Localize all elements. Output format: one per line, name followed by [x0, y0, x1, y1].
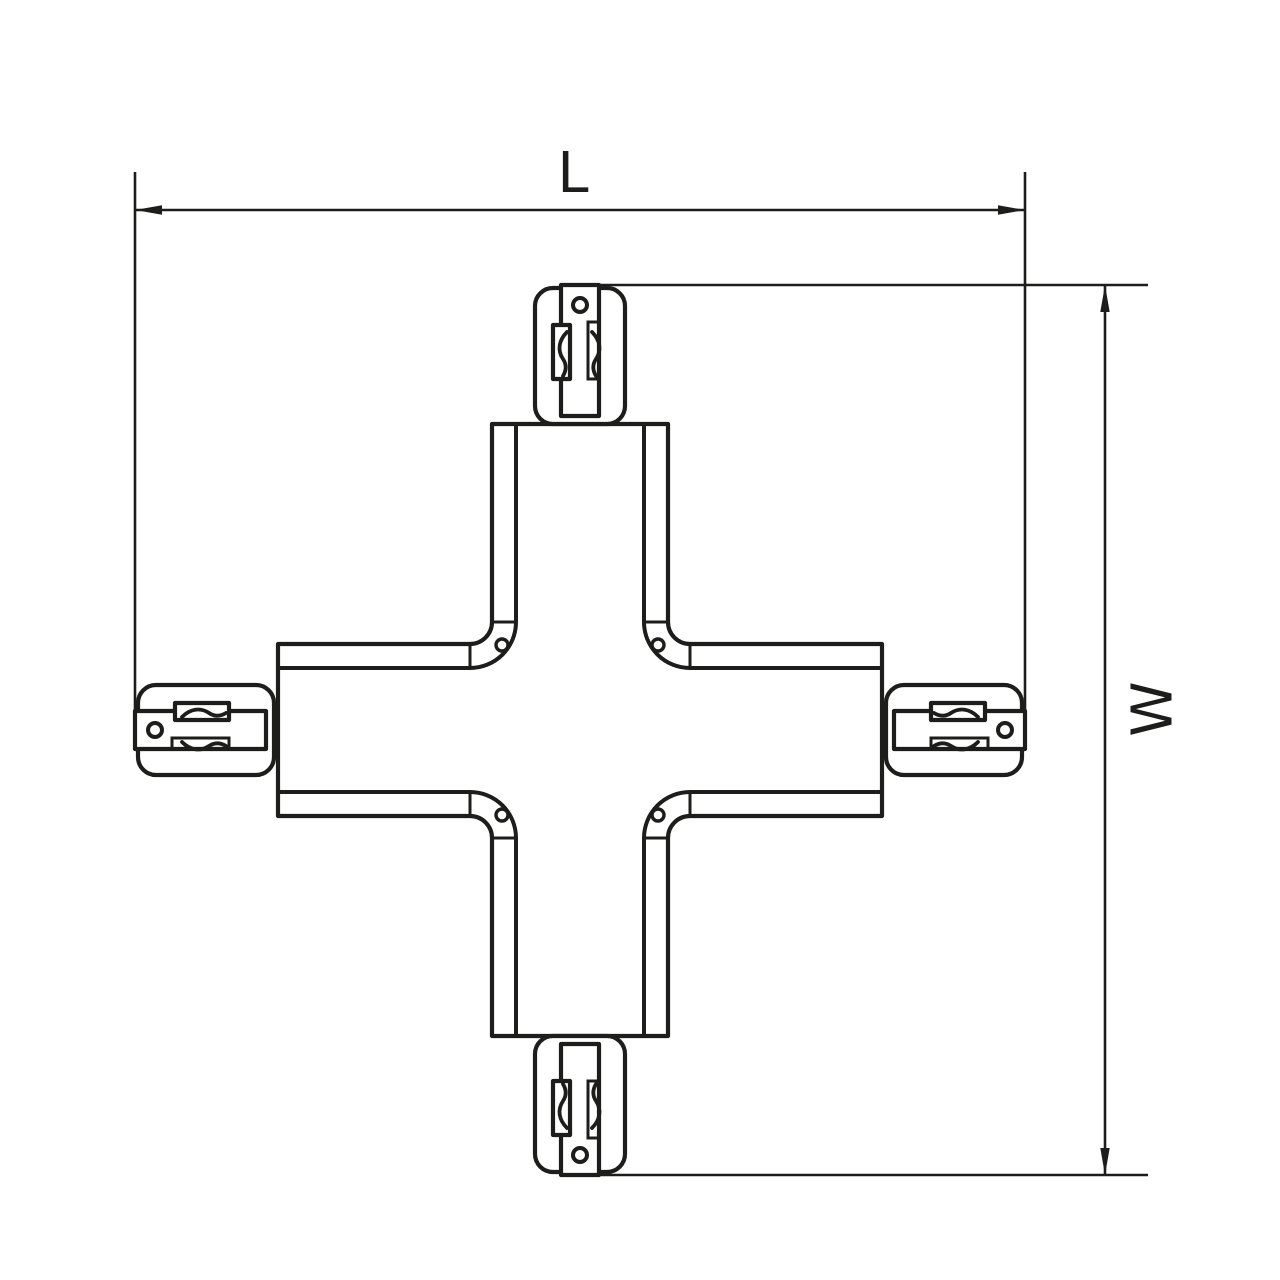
connector-end-right	[886, 685, 1025, 775]
arrowhead-left	[135, 205, 162, 214]
corner-screw-hole	[496, 809, 508, 821]
corner-screw-hole	[496, 639, 508, 651]
corner-screw-hole	[652, 639, 664, 651]
connector-end-left	[135, 685, 274, 775]
corner-screw-hole	[652, 809, 664, 821]
drawing-canvas: L W	[0, 0, 1280, 1280]
connector-end-bottom	[535, 1036, 625, 1175]
cross-body	[278, 424, 882, 1036]
dimension-width-label: W	[1121, 681, 1186, 736]
dimension-length-label: L	[557, 141, 588, 206]
cross-body-outline	[278, 424, 882, 1036]
arrowhead-top	[1100, 285, 1109, 312]
connector-end-top	[535, 285, 625, 424]
arrowhead-bottom	[1100, 1148, 1109, 1175]
technical-drawing: L W	[0, 0, 1280, 1280]
arrowhead-right	[998, 205, 1025, 214]
